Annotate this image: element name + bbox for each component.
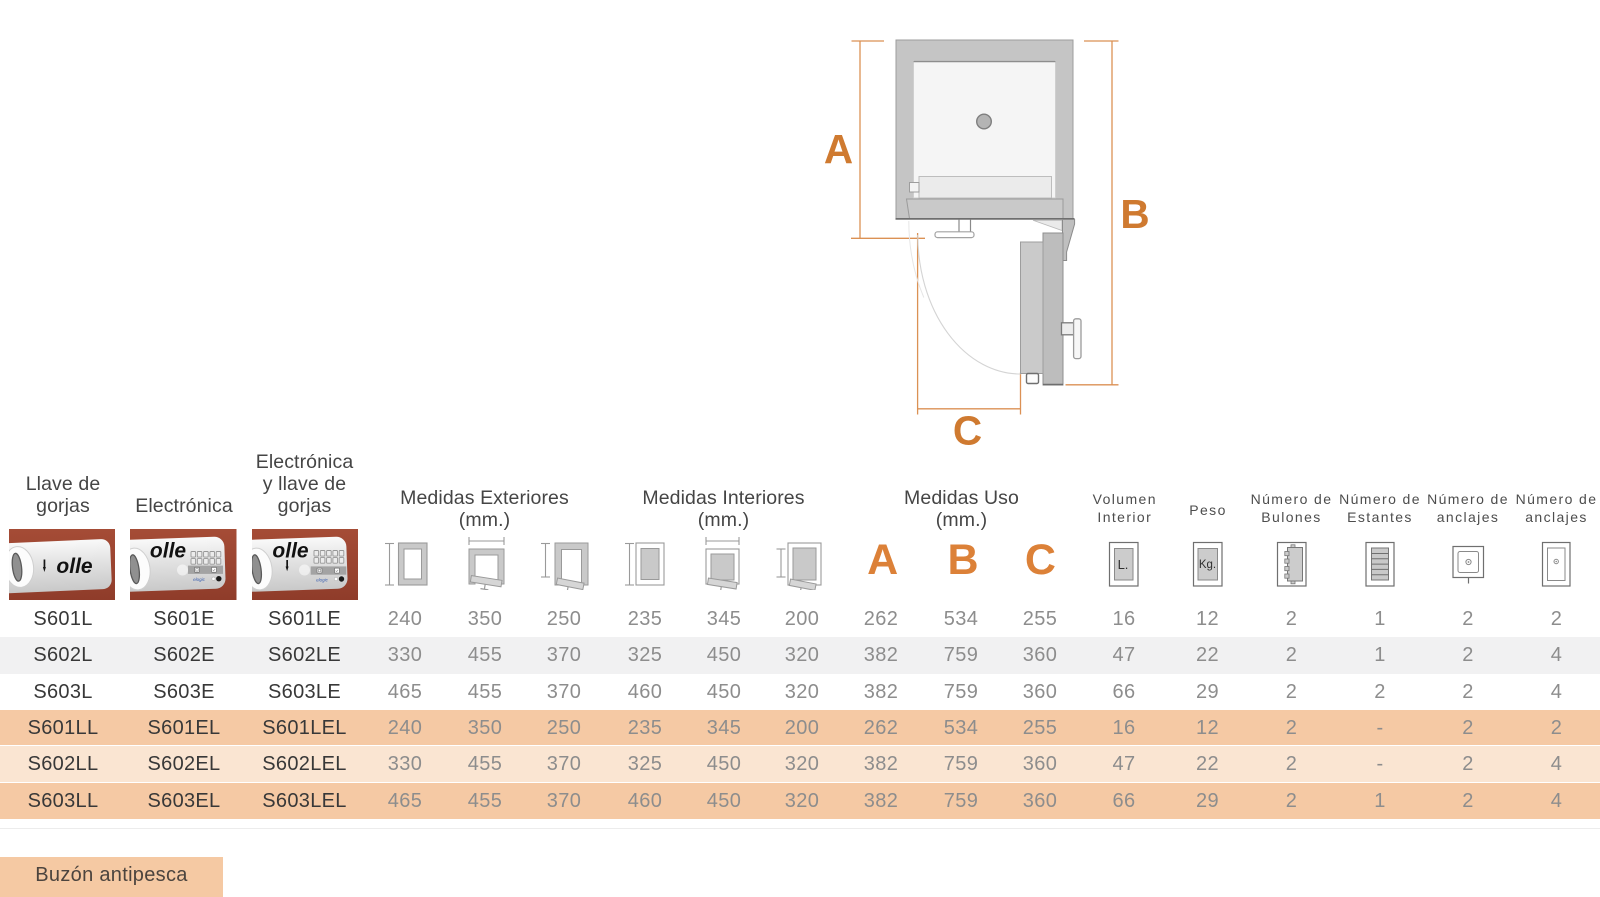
svg-text:Kg.: Kg. <box>1199 559 1216 571</box>
svg-text:B: B <box>1120 191 1149 237</box>
svg-text:C: C <box>953 408 982 454</box>
svg-text:L.: L. <box>1118 557 1129 572</box>
svg-text:A: A <box>824 126 853 172</box>
